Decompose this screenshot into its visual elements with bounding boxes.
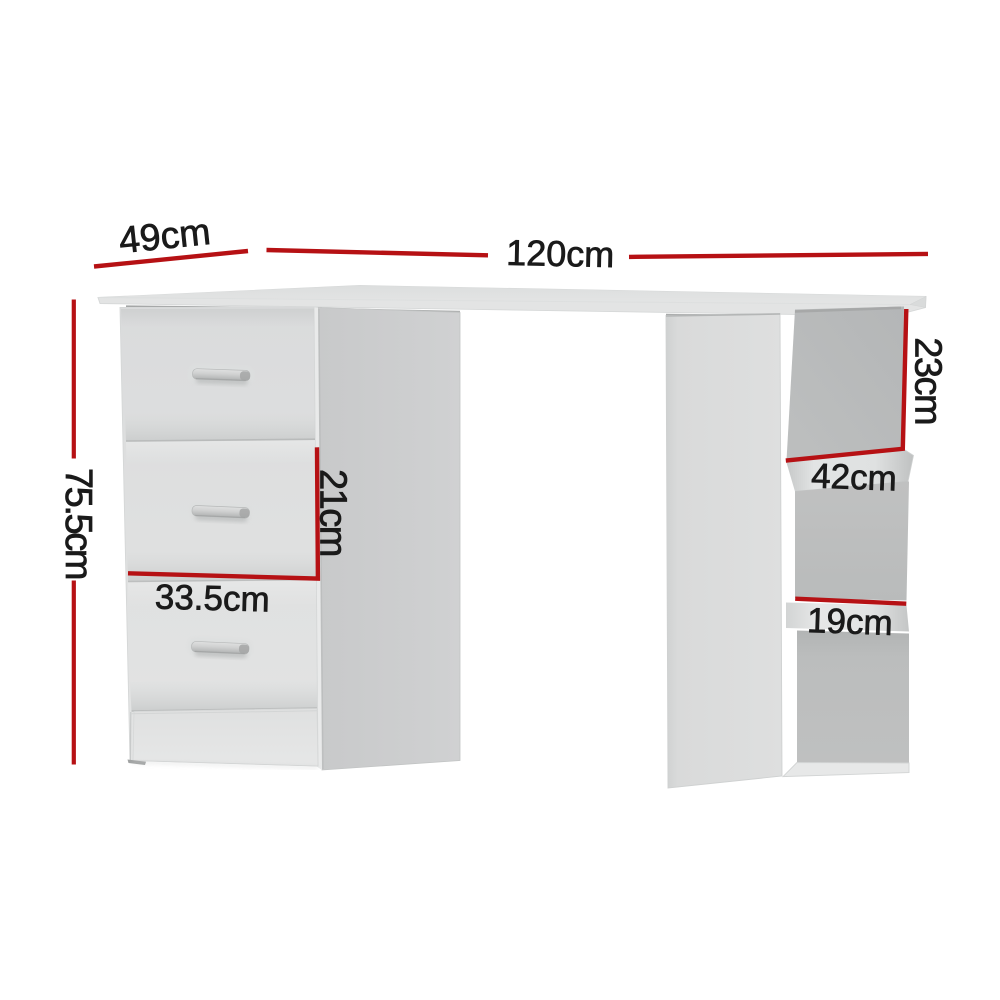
svg-text:42cm: 42cm	[811, 457, 898, 499]
svg-text:75.5cm: 75.5cm	[57, 468, 99, 579]
svg-text:33.5cm: 33.5cm	[154, 578, 270, 620]
svg-text:120cm: 120cm	[506, 232, 615, 275]
svg-text:21cm: 21cm	[311, 469, 353, 556]
svg-text:19cm: 19cm	[806, 601, 893, 643]
svg-text:23cm: 23cm	[906, 337, 948, 424]
